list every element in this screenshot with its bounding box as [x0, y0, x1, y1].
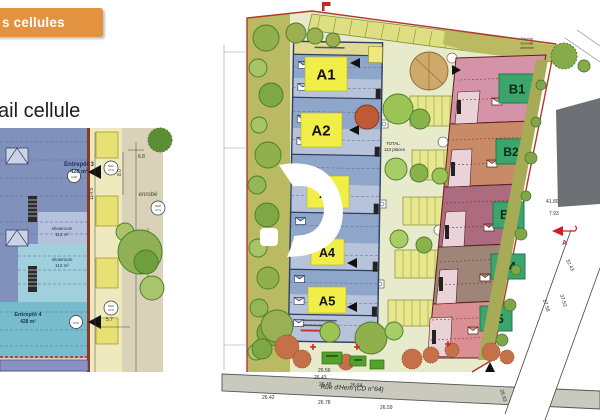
svg-text:27.0: 27.0: [108, 308, 114, 312]
svg-text:26.42: 26.42: [262, 395, 275, 401]
surface-label: enrobé: [139, 192, 158, 198]
dim-8-0: 8.0: [117, 169, 123, 176]
detail-bottom-band: [0, 360, 88, 371]
building-a-corner-room: [368, 47, 382, 63]
showroom1-area-label: 112 m²: [55, 232, 69, 237]
svg-text:7.93: 7.93: [549, 211, 559, 217]
section-marker-label: A: [562, 240, 567, 247]
dim-6-8: 6.8: [138, 154, 145, 160]
plans-canvas: 0.00 0.00 NGF 27.0 NGF 27.0 NGF 27.0: [0, 0, 600, 420]
page: s cellules ail cellule: [0, 0, 600, 420]
svg-text:27.0: 27.0: [155, 208, 161, 212]
svg-text:26.64: 26.64: [350, 383, 363, 389]
svg-text:0.00: 0.00: [71, 175, 77, 179]
detail-plan: 0.00 0.00 NGF 27.0 NGF 27.0 NGF 27.0: [0, 128, 172, 372]
dim-114-5: 114.5: [89, 188, 95, 200]
svg-text:aérienne: aérienne: [520, 46, 533, 50]
entrepot3-area-label: 428 m²: [70, 168, 88, 175]
cell-label-a1: A1: [316, 67, 335, 84]
svg-text:TOTAL: TOTAL: [386, 141, 400, 146]
autumn-tree: [355, 105, 379, 129]
entrepot4-area: [0, 302, 88, 358]
showroom1-label: showroom: [52, 226, 73, 231]
neighbour-building: [556, 98, 600, 207]
svg-text:27.0: 27.0: [108, 168, 114, 172]
entrepot4-area-label: 428 m²: [20, 319, 36, 325]
cell-label-a2: A2: [311, 123, 330, 140]
dim-5-7: 5.7: [106, 317, 113, 323]
cell-label-a5: A5: [319, 294, 336, 309]
svg-text:26.56: 26.56: [318, 368, 331, 374]
svg-text:113 places: 113 places: [384, 147, 406, 152]
cell-label-b2: B2: [503, 145, 519, 159]
showroom2-label: showroom: [52, 257, 73, 262]
svg-text:26.43: 26.43: [314, 375, 327, 381]
showroom2-area-label: 112 m²: [55, 263, 69, 268]
svg-text:26.59: 26.59: [380, 405, 393, 411]
cell-label-b1: B1: [509, 82, 526, 97]
svg-text:41.80: 41.80: [546, 199, 559, 205]
site-plan: Réserve incendie aérienne: [222, 2, 600, 420]
svg-text:incendie: incendie: [521, 42, 534, 46]
flag-marker: [322, 2, 331, 11]
svg-text:26.78: 26.78: [318, 400, 331, 406]
entrepot3-label: Entrepôt 3: [64, 162, 94, 168]
svg-text:0.00: 0.00: [73, 321, 79, 325]
svg-text:26.48: 26.48: [319, 382, 332, 388]
entrepot4-label: Entrepôt 4: [14, 312, 42, 318]
margin-dim-chain: [224, 45, 247, 370]
